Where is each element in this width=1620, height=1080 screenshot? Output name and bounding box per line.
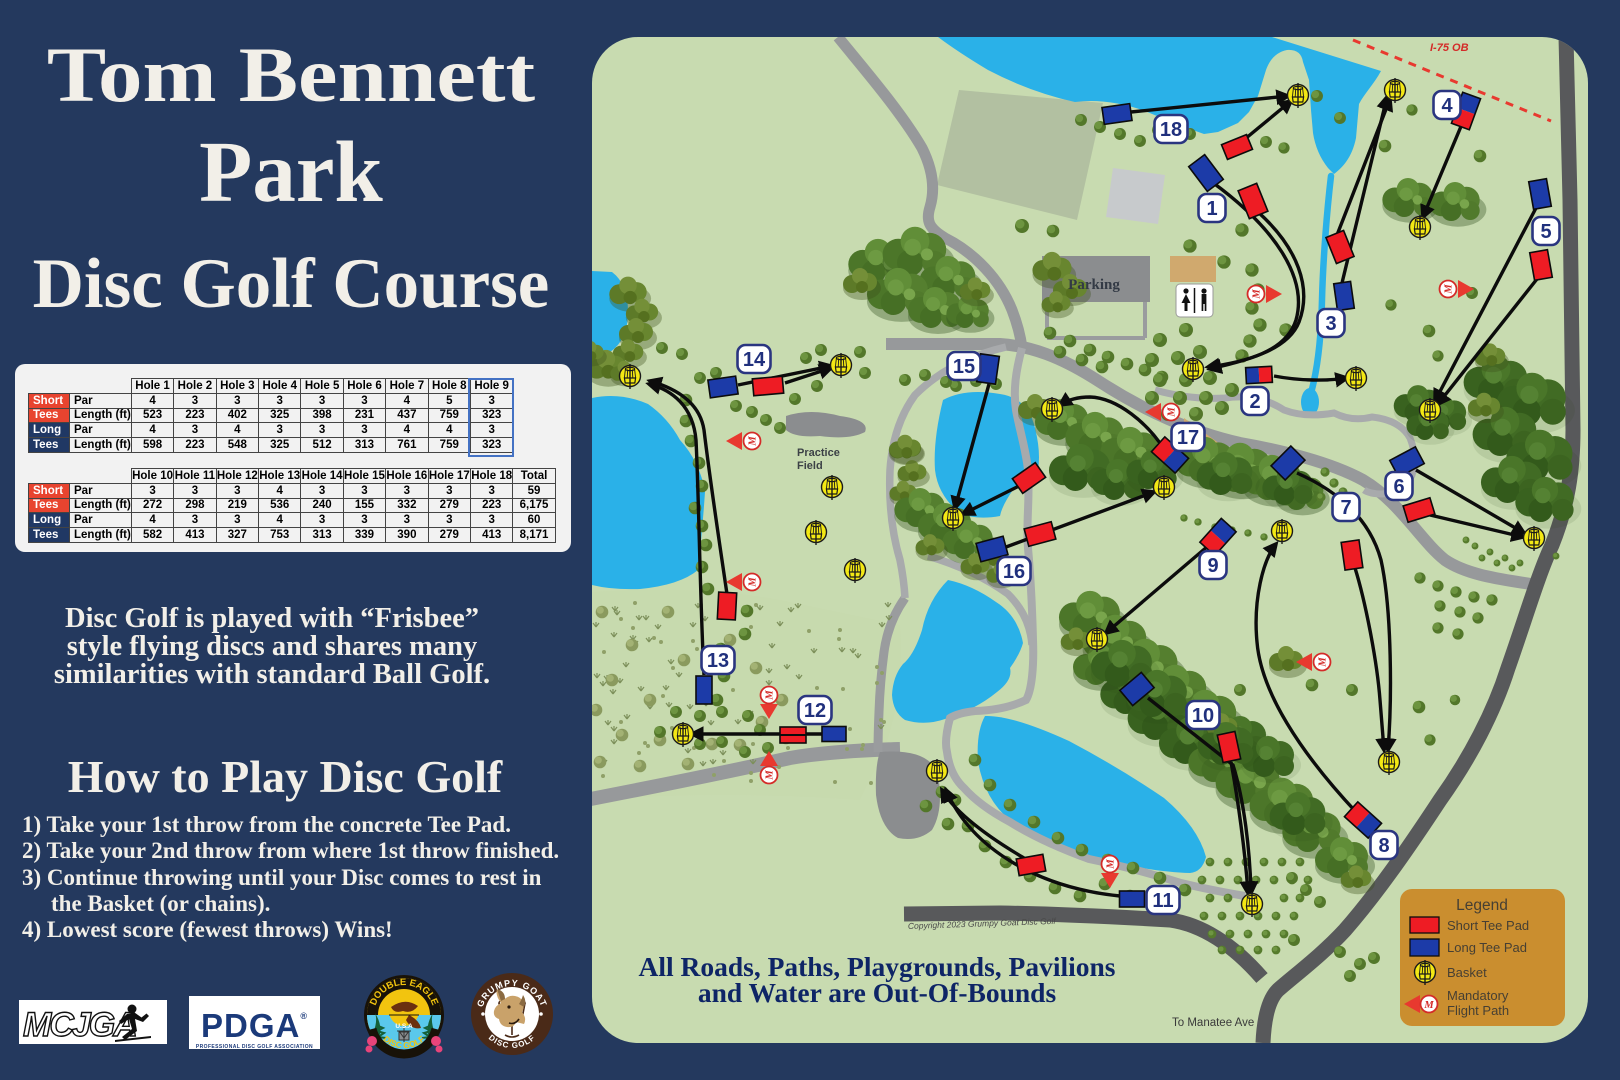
svg-text:9: 9 [1207, 555, 1218, 577]
svg-text:I-75 OB: I-75 OB [1430, 42, 1469, 54]
svg-text:and Water are Out-Of-Bounds: and Water are Out-Of-Bounds [698, 977, 1057, 1008]
svg-text:15: 15 [953, 356, 975, 378]
svg-text:Mandatory: Mandatory [1447, 988, 1509, 1003]
svg-text:Parking: Parking [1068, 277, 1120, 293]
svg-text:14: 14 [743, 349, 766, 371]
svg-text:1: 1 [1206, 198, 1217, 220]
svg-text:16: 16 [1003, 561, 1025, 583]
svg-text:10: 10 [1192, 705, 1214, 727]
svg-text:7: 7 [1340, 497, 1351, 519]
svg-text:Practice: Practice [797, 447, 840, 459]
svg-text:18: 18 [1160, 119, 1182, 141]
svg-text:Legend: Legend [1456, 897, 1508, 914]
svg-text:4: 4 [1441, 95, 1453, 117]
svg-text:To Manatee Ave: To Manatee Ave [1172, 1017, 1254, 1029]
svg-text:Long Tee Pad: Long Tee Pad [1447, 940, 1527, 955]
svg-text:17: 17 [1177, 427, 1199, 449]
svg-text:13: 13 [707, 650, 729, 672]
svg-text:11: 11 [1152, 890, 1173, 912]
svg-text:3: 3 [1325, 313, 1336, 335]
svg-text:M: M [1423, 1000, 1434, 1011]
svg-text:6: 6 [1393, 476, 1404, 498]
svg-text:Field: Field [797, 460, 823, 472]
svg-text:Flight Path: Flight Path [1447, 1003, 1509, 1018]
svg-text:8: 8 [1378, 835, 1389, 857]
svg-text:12: 12 [804, 700, 826, 722]
svg-text:Basket: Basket [1447, 965, 1487, 980]
svg-text:2: 2 [1249, 391, 1260, 413]
svg-text:Short Tee Pad: Short Tee Pad [1447, 918, 1529, 933]
svg-text:5: 5 [1540, 221, 1551, 243]
